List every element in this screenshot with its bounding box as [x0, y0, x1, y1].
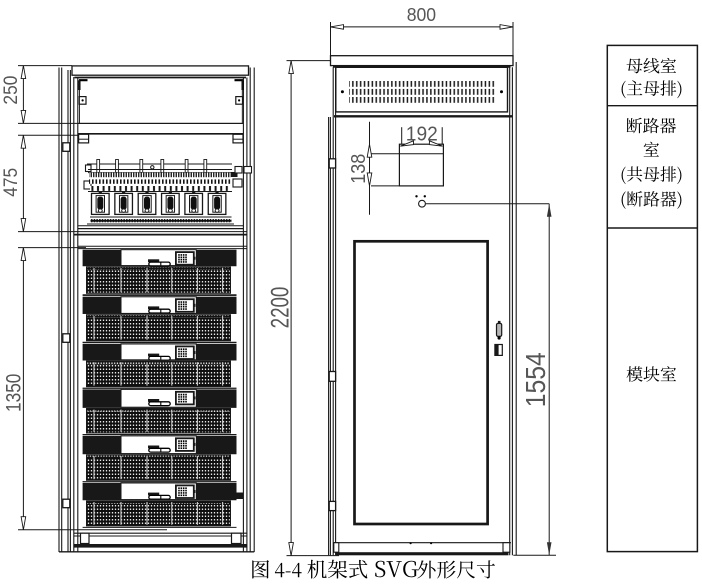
svg-text:192: 192 [406, 123, 438, 146]
svg-text:1350: 1350 [1, 374, 25, 412]
svg-text:138: 138 [347, 154, 370, 184]
svg-text:250: 250 [0, 76, 22, 105]
svg-text:800: 800 [407, 5, 436, 25]
svg-text:2200: 2200 [267, 287, 295, 329]
svg-text:1554: 1554 [520, 352, 551, 407]
svg-text:475: 475 [0, 168, 22, 197]
